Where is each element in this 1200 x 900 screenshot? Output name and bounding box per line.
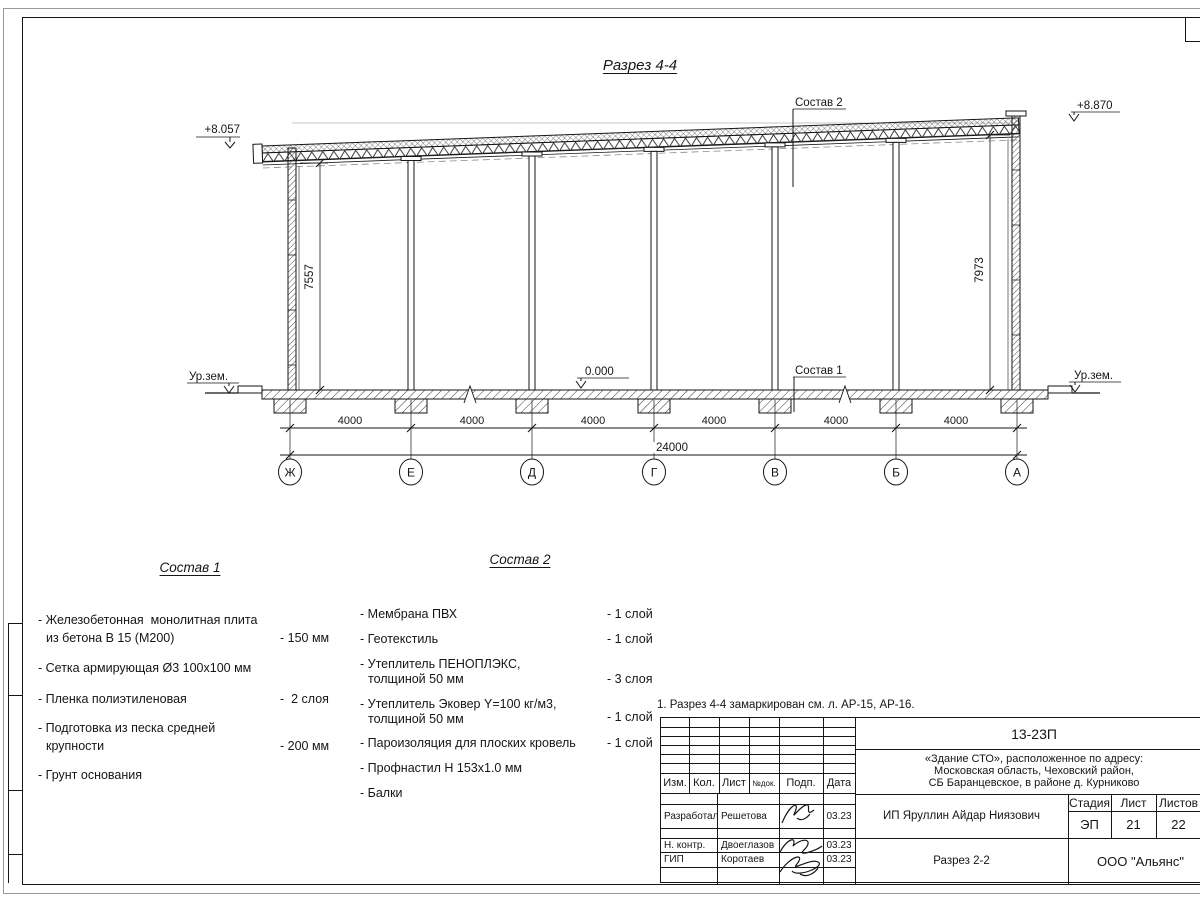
grid-label: В: [771, 466, 779, 480]
grid-label: Д: [528, 466, 536, 480]
elevation-mark-left: +8.057: [196, 124, 240, 148]
comp1-item-value: - 150 мм: [280, 631, 329, 645]
tb-project-line: СБ Баранцевское, в районе д. Курниково: [855, 776, 1200, 789]
dim-label-7557: 7557: [304, 264, 316, 290]
tb-col-podp: Подп.: [779, 773, 823, 793]
svg-text:0.000: 0.000: [585, 366, 614, 378]
leader-floor-composition: Состав 1: [793, 365, 846, 412]
comp2-item-line: - Геотекстиль: [360, 632, 438, 646]
comp2-item-value: - 3 слоя: [607, 672, 652, 686]
comp2-item-line: - Балки: [360, 786, 403, 800]
foundation-pads: [274, 399, 1033, 413]
elevation-mark-zero: 0.000: [576, 366, 629, 388]
tb-client: ИП Яруллин Айдар Ниязович: [855, 794, 1068, 838]
tb-col-list: Лист: [719, 773, 749, 793]
svg-text:Ур.зем.: Ур.зем.: [189, 371, 228, 383]
comp1-item-value: - 2 слоя: [280, 692, 329, 706]
comp1-item-line: - Подготовка из песка средней: [38, 721, 215, 735]
tb-role: Разработал: [664, 804, 717, 828]
grid-label: А: [1013, 466, 1021, 480]
span-dim: 4000: [702, 415, 726, 427]
grid-label: Г: [651, 466, 658, 480]
tb-date: 03.23: [823, 852, 855, 867]
span-dim: 4000: [581, 415, 605, 427]
grid-label: Ж: [284, 466, 295, 480]
comp2-item-line: - Мембрана ПВХ: [360, 607, 457, 621]
tb-doc-number: 13-23П: [855, 718, 1200, 749]
height-dimension-left: 7557: [300, 159, 328, 394]
tb-col-ndok: №док.: [749, 773, 779, 793]
total-dim: 24000: [656, 442, 688, 454]
tb-sheet-number: 21: [1111, 811, 1156, 838]
comp1-item-value: - 200 мм: [280, 739, 329, 753]
comp2-item-line: - Профнастил Н 153х1.0 мм: [360, 761, 522, 775]
tb-stage-value: ЭП: [1068, 811, 1111, 838]
ground-level-mark-left: Ур.зем.: [187, 371, 239, 393]
comp2-item-line: - Утеплитель ПЕНОПЛЭКС,: [360, 657, 520, 671]
tb-name: Решетова: [721, 804, 779, 828]
comp2-item-value: - 1 слой: [607, 632, 653, 646]
svg-text:Состав 1: Состав 1: [795, 365, 843, 377]
span-dim: 4000: [338, 415, 362, 427]
comp2-item-line: толщиной 50 мм: [368, 712, 464, 726]
span-dim: 4000: [824, 415, 848, 427]
comp2-item-line: - Пароизоляция для плоских кровель: [360, 736, 576, 750]
grid-axes: Ж Е Д Г В Б А: [279, 459, 1029, 485]
comp2-item-line: - Утеплитель Эковер Y=100 кг/м3,: [360, 697, 556, 711]
height-dimension-right: 7973: [974, 131, 1010, 394]
comp1-item-line: из бетона В 15 (М200): [46, 631, 174, 645]
columns: [401, 138, 906, 390]
comp1-item-line: - Грунт основания: [38, 768, 142, 782]
comp2-item-value: - 1 слой: [607, 736, 653, 750]
tb-role: Н. контр.: [664, 838, 717, 852]
roof-end-cap: [253, 144, 263, 163]
tb-role: ГИП: [664, 852, 717, 867]
grid-label: Б: [892, 466, 900, 480]
tb-sheet-label: Лист: [1111, 794, 1156, 811]
tb-col-izm: Изм.: [661, 773, 689, 793]
comp2-item-value: - 1 слой: [607, 710, 653, 724]
svg-text:+8.057: +8.057: [205, 124, 241, 136]
svg-text:Состав 2: Состав 2: [795, 97, 843, 109]
dim-label-7973: 7973: [974, 257, 986, 283]
tb-col-kol: Кол.: [689, 773, 719, 793]
tb-stage-label: Стадия: [1068, 794, 1111, 811]
tb-col-data: Дата: [823, 773, 855, 793]
drawing-sheet: Разрез 4-4: [0, 0, 1200, 900]
comp1-item-line: - Железобетонная монолитная плита: [38, 613, 257, 627]
tb-sheet-title: Разрез 2-2: [855, 838, 1068, 884]
ground-level-mark-right: Ур.зем.: [1069, 370, 1121, 392]
sheet-note: 1. Разрез 4-4 замаркирован см. л. АР-15,…: [657, 699, 915, 712]
tb-sheets-total: 22: [1156, 811, 1200, 838]
comp1-item-line: крупности: [46, 739, 104, 753]
svg-text:Ур.зем.: Ур.зем.: [1074, 370, 1113, 382]
left-wall: [288, 148, 299, 390]
span-dim: 4000: [944, 415, 968, 427]
elevation-mark-right: +8.870: [1069, 100, 1120, 121]
tb-name: Коротаев: [721, 852, 779, 867]
comp1-item-line: - Сетка армирующая Ø3 100х100 мм: [38, 661, 251, 675]
svg-text:+8.870: +8.870: [1077, 100, 1113, 112]
tb-company: ООО "Альянс": [1068, 838, 1200, 884]
comp2-item-line: толщиной 50 мм: [368, 672, 464, 686]
composition1-heading: Состав 1: [120, 560, 260, 576]
tb-date: 03.23: [823, 804, 855, 828]
comp1-item-line: - Пленка полиэтиленовая: [38, 692, 187, 706]
right-wall: [1006, 111, 1026, 390]
composition2-heading: Состав 2: [450, 552, 590, 568]
tb-sheets-label: Листов: [1156, 794, 1200, 811]
title-block: Изм. Кол. Лист №док. Подп. Дата Разработ…: [660, 717, 1200, 883]
comp2-item-value: - 1 слой: [607, 607, 653, 621]
grid-label: Е: [407, 466, 415, 480]
tb-name: Двоеглазов: [721, 838, 779, 852]
tb-date: 03.23: [823, 838, 855, 852]
span-dim: 4000: [460, 415, 484, 427]
